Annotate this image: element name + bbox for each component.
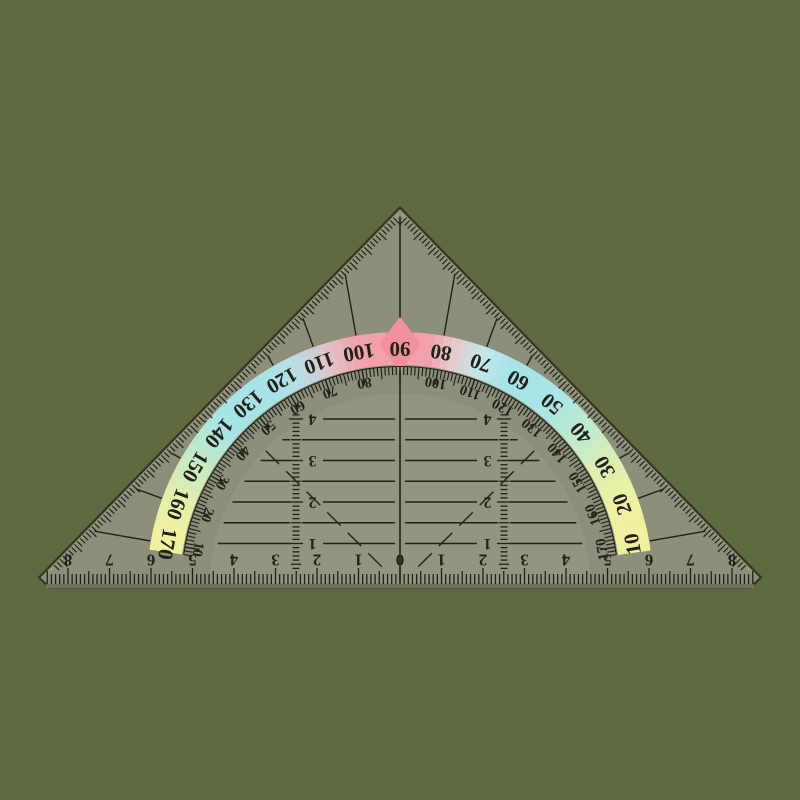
svg-text:3: 3 — [520, 551, 529, 570]
svg-text:3: 3 — [271, 551, 280, 570]
svg-text:3: 3 — [484, 452, 492, 469]
svg-text:5: 5 — [188, 551, 197, 570]
svg-text:0: 0 — [396, 551, 405, 570]
svg-text:4: 4 — [309, 411, 317, 428]
svg-text:6: 6 — [645, 551, 654, 570]
svg-text:3: 3 — [309, 452, 317, 469]
svg-text:1: 1 — [437, 551, 446, 570]
svg-text:80: 80 — [356, 373, 373, 391]
svg-text:5: 5 — [603, 551, 612, 570]
svg-text:4: 4 — [561, 551, 570, 570]
geodreieck-screenshot: 1020304050607080901001101201301401501601… — [0, 0, 800, 800]
svg-text:2: 2 — [309, 494, 317, 511]
svg-text:80: 80 — [429, 339, 454, 366]
svg-text:4: 4 — [229, 551, 238, 570]
svg-text:2: 2 — [479, 551, 488, 570]
svg-text:1: 1 — [309, 535, 317, 552]
svg-text:7: 7 — [686, 551, 695, 570]
svg-text:7: 7 — [105, 551, 114, 570]
svg-text:2: 2 — [313, 551, 322, 570]
svg-text:8: 8 — [728, 551, 737, 570]
svg-text:8: 8 — [64, 551, 73, 570]
svg-text:10: 10 — [619, 532, 646, 557]
svg-text:2: 2 — [484, 494, 492, 511]
svg-text:1: 1 — [354, 551, 363, 570]
svg-text:4: 4 — [484, 411, 492, 428]
geodreieck: 1020304050607080901001101201301401501601… — [0, 0, 800, 800]
svg-text:90: 90 — [390, 337, 411, 361]
svg-text:1: 1 — [484, 535, 492, 552]
svg-text:6: 6 — [147, 551, 156, 570]
